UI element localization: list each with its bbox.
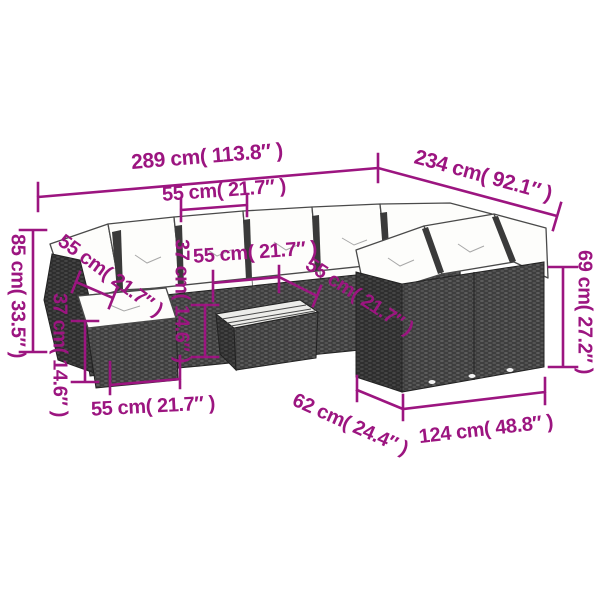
product-dimension-diagram: 289 cm( 113.8″ ) 234 cm( 92.1″ ) 55 cm( … [0,0,600,600]
furniture-illustration [0,0,600,600]
dim-label-ottoman-height: 37 cm( 14.6″ ) [48,293,71,417]
dim-label-table-height: 37 cm( 14.6″ ) [170,239,193,363]
dim-label-overall-height: 85 cm( 33.5″ ) [6,234,29,358]
dim-label-arm-height: 69 cm( 27.2″ ) [573,250,596,374]
